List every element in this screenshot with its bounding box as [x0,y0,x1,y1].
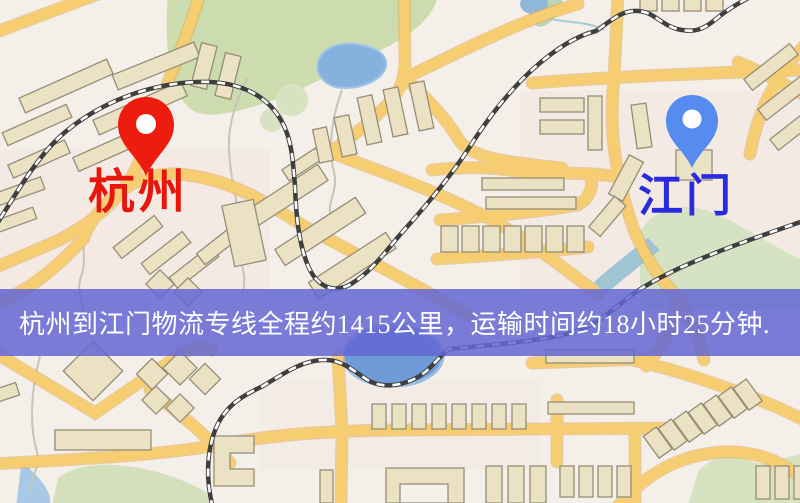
map-screenshot: 杭州 江门 杭州到江门物流专线全程约1415公里，运输时间约18小时25分钟. [0,0,800,503]
destination-pin-hole [683,110,702,129]
origin-pin-hole [136,114,156,134]
map-image [0,0,800,503]
route-info-text: 杭州到江门物流专线全程约1415公里，运输时间约18小时25分钟. [19,304,770,341]
route-info-banner: 杭州到江门物流专线全程约1415公里，运输时间约18小时25分钟. [0,289,800,356]
origin-city-label: 杭州 [88,170,188,217]
destination-city-label: 江门 [638,174,734,219]
